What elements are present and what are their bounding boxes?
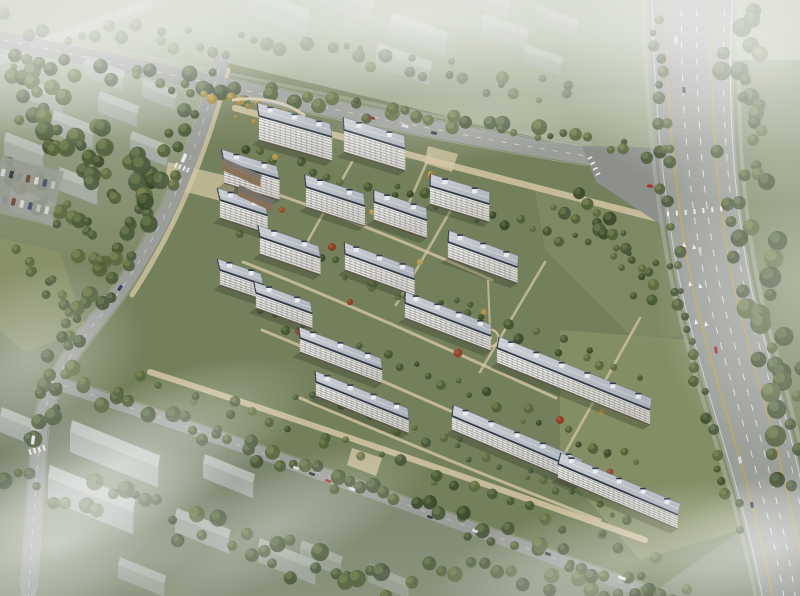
roof-bulkhead (610, 384, 615, 388)
roof-bulkhead (385, 196, 390, 200)
roof-bulkhead (227, 263, 232, 267)
roof-bulkhead (457, 236, 462, 240)
rendering-canvas (0, 0, 800, 596)
roof-bulkhead (302, 242, 307, 246)
roof-bulkhead (515, 433, 520, 437)
roof-bulkhead (371, 395, 376, 399)
roof-bulkhead (504, 253, 509, 257)
roof-bulkhead (325, 376, 330, 380)
aerial-rendering (0, 0, 800, 596)
roof-bulkhead (540, 444, 545, 448)
horizon-haze (0, 0, 800, 150)
roof-bulkhead (534, 353, 539, 357)
roof-bulkhead (435, 305, 440, 309)
roof-bulkhead (249, 271, 254, 275)
roof-bulkhead (348, 386, 353, 390)
roof-bulkhead (354, 248, 359, 252)
roof-bulkhead (489, 422, 494, 426)
car (647, 184, 653, 188)
roof-bulkhead (636, 394, 641, 398)
roof-bulkhead (472, 189, 477, 193)
roof-bulkhead (617, 479, 622, 483)
roof-bulkhead (338, 343, 343, 347)
roof-bulkhead (272, 232, 277, 236)
roof-bulkhead (508, 343, 513, 347)
roof-bulkhead (347, 190, 352, 194)
roof-bulkhead (394, 404, 399, 408)
roof-bulkhead (481, 244, 486, 248)
roof-bulkhead (262, 164, 267, 168)
roof-bulkhead (478, 321, 483, 325)
roof-bulkhead (411, 205, 416, 209)
roof-bulkhead (463, 411, 468, 415)
roof-bulkhead (295, 298, 300, 302)
roof-bulkhead (377, 256, 382, 260)
roof-bulkhead (585, 374, 590, 378)
roof-bulkhead (443, 180, 448, 184)
roof-bulkhead (267, 288, 272, 292)
roof-bulkhead (318, 181, 323, 185)
roof-bulkhead (456, 313, 461, 317)
roof-bulkhead (311, 333, 316, 337)
roof-bulkhead (569, 459, 574, 463)
roof-bulkhead (365, 354, 370, 358)
roof-bulkhead (593, 469, 598, 473)
roof-bulkhead (413, 297, 418, 301)
roof-bulkhead (400, 265, 405, 269)
roof-bulkhead (559, 363, 564, 367)
roof-bulkhead (234, 155, 239, 159)
roof-bulkhead (228, 193, 233, 197)
